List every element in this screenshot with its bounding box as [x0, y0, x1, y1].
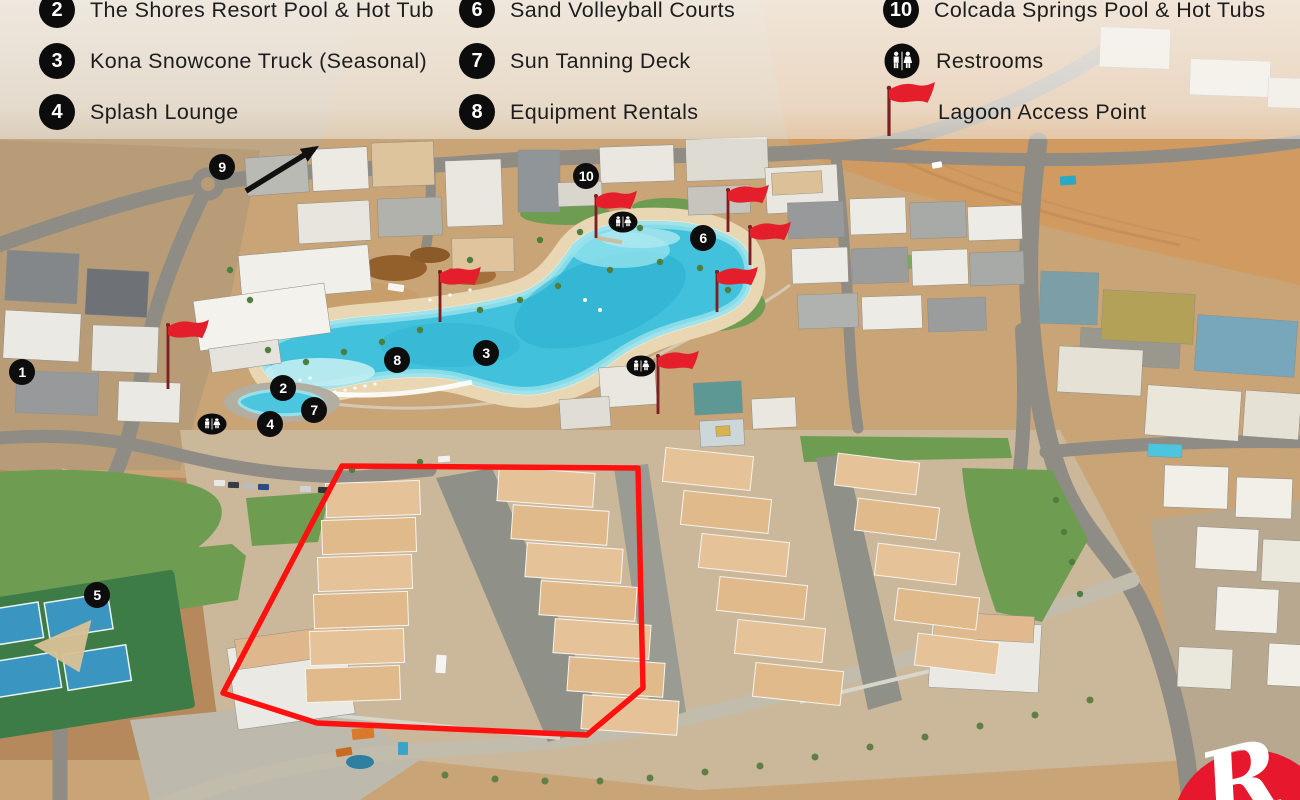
legend-item-the-shores-resort-pool-hot-tub: 2The Shores Resort Pool & Hot Tub	[39, 0, 434, 28]
legend-number-badge: 7	[459, 43, 495, 79]
legend-label: Lagoon Access Point	[938, 100, 1146, 125]
legend-item-kona-snowcone-truck-seasonal: 3Kona Snowcone Truck (Seasonal)	[39, 43, 427, 79]
legend-label: Kona Snowcone Truck (Seasonal)	[90, 49, 427, 74]
legend-label: Colcada Springs Pool & Hot Tubs	[934, 0, 1266, 23]
legend-number-badge: 2	[39, 0, 75, 28]
lagoon-flag-icon	[883, 94, 923, 130]
map-legend: 2The Shores Resort Pool & Hot Tub3Kona S…	[0, 0, 1300, 139]
restrooms-icon	[883, 43, 921, 79]
legend-item-equipment-rentals: 8Equipment Rentals	[459, 94, 698, 130]
legend-label: Equipment Rentals	[510, 100, 698, 125]
legend-label: Restrooms	[936, 49, 1044, 74]
legend-number-badge: 4	[39, 94, 75, 130]
legend-item-sand-volleyball-courts: 6Sand Volleyball Courts	[459, 0, 735, 28]
resort-aerial-map: R 12345678910 2The Shores Resort Pool & …	[0, 0, 1300, 800]
legend-number-badge: 10	[883, 0, 919, 28]
legend-label: The Shores Resort Pool & Hot Tub	[90, 0, 434, 23]
legend-item-splash-lounge: 4Splash Lounge	[39, 94, 239, 130]
legend-item-restrooms: Restrooms	[883, 43, 1044, 79]
legend-number-badge: 8	[459, 94, 495, 130]
legend-item-lagoon-access-point: Lagoon Access Point	[883, 94, 1146, 130]
legend-label: Sand Volleyball Courts	[510, 0, 735, 23]
legend-label: Sun Tanning Deck	[510, 49, 691, 74]
legend-label: Splash Lounge	[90, 100, 239, 125]
legend-item-sun-tanning-deck: 7Sun Tanning Deck	[459, 43, 691, 79]
legend-number-badge: 3	[39, 43, 75, 79]
legend-item-colcada-springs-pool-hot-tubs: 10Colcada Springs Pool & Hot Tubs	[883, 0, 1266, 28]
legend-number-badge: 6	[459, 0, 495, 28]
